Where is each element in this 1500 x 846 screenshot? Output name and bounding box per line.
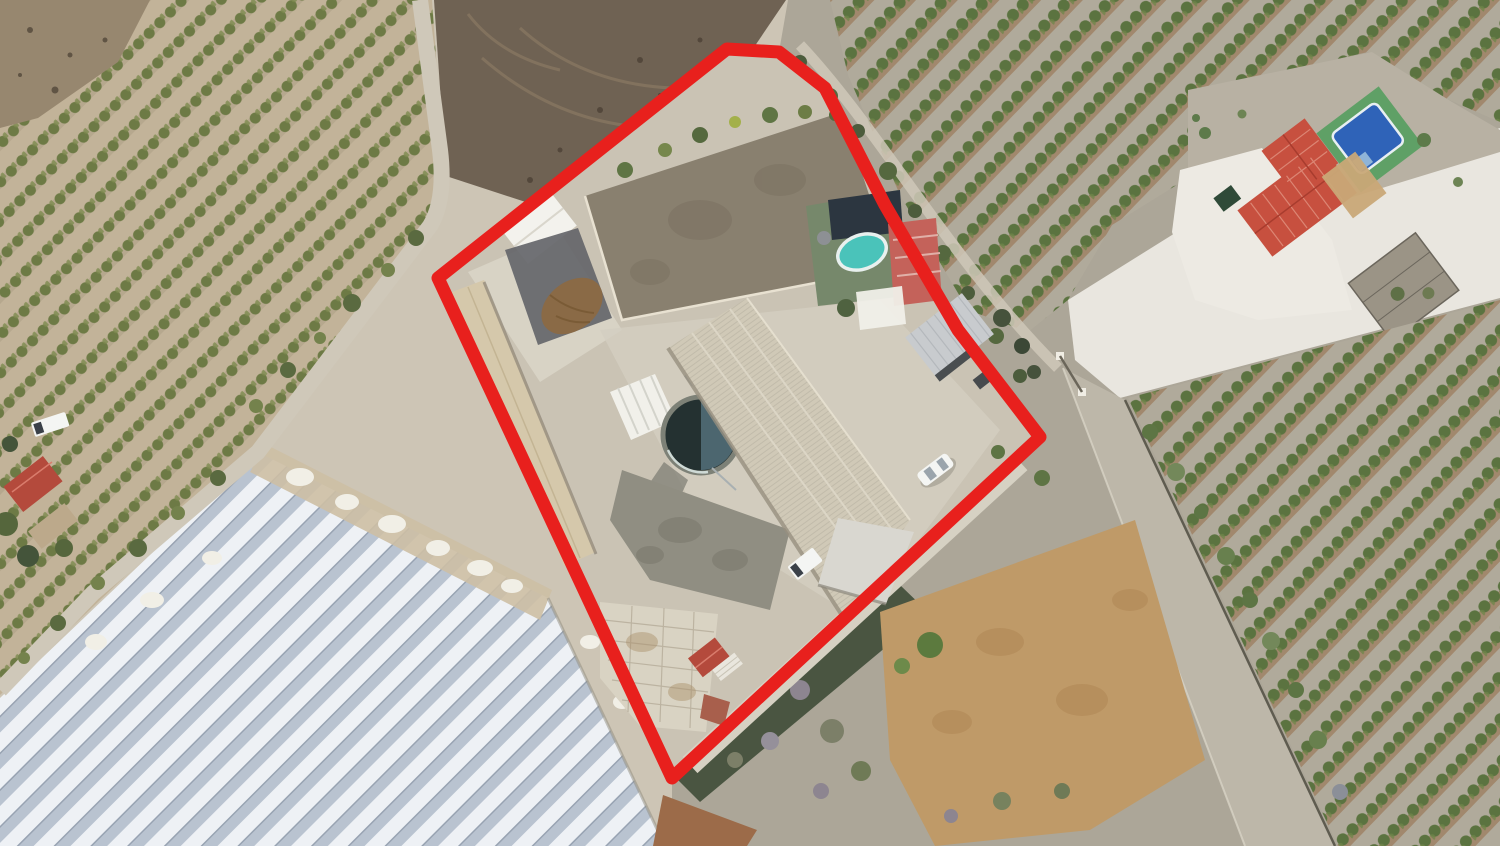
- aerial-photo-canvas: [0, 0, 1500, 846]
- field-bush: [917, 632, 943, 658]
- aerial-photo: [0, 0, 1500, 846]
- patio-umbrella: [817, 231, 831, 245]
- yard-bush: [991, 445, 1005, 459]
- pergola-white: [856, 286, 906, 330]
- field-bush-small: [894, 658, 910, 674]
